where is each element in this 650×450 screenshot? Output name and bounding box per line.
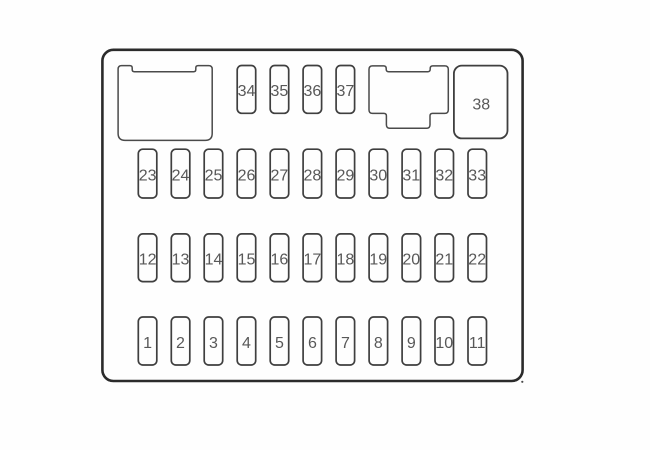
svg-text:33: 33	[468, 167, 486, 184]
svg-text:12: 12	[139, 252, 157, 269]
svg-text:23: 23	[139, 167, 157, 184]
svg-text:26: 26	[238, 167, 256, 184]
svg-text:17: 17	[304, 252, 322, 269]
svg-text:14: 14	[205, 252, 223, 269]
svg-text:36: 36	[304, 83, 322, 100]
svg-text:13: 13	[172, 252, 190, 269]
svg-text:5: 5	[275, 335, 284, 352]
svg-text:10: 10	[435, 335, 453, 352]
svg-text:19: 19	[369, 252, 387, 269]
svg-text:1: 1	[143, 335, 152, 352]
svg-text:22: 22	[468, 252, 486, 269]
svg-text:8: 8	[374, 335, 383, 352]
svg-text:16: 16	[271, 252, 289, 269]
svg-text:4: 4	[242, 335, 251, 352]
svg-text:28: 28	[304, 167, 322, 184]
svg-text:9: 9	[407, 335, 416, 352]
svg-text:6: 6	[308, 335, 317, 352]
svg-text:21: 21	[435, 252, 453, 269]
svg-text:15: 15	[238, 252, 256, 269]
svg-text:20: 20	[402, 252, 420, 269]
svg-text:30: 30	[369, 167, 387, 184]
svg-text:24: 24	[172, 167, 190, 184]
svg-text:25: 25	[205, 167, 223, 184]
svg-text:3: 3	[209, 335, 218, 352]
svg-text:7: 7	[341, 335, 350, 352]
svg-text:32: 32	[435, 167, 453, 184]
svg-text:35: 35	[271, 83, 289, 100]
svg-text:34: 34	[238, 83, 256, 100]
svg-text:31: 31	[402, 167, 420, 184]
svg-text:29: 29	[337, 167, 355, 184]
svg-text:2: 2	[176, 335, 185, 352]
svg-text:18: 18	[337, 252, 355, 269]
svg-text:27: 27	[271, 167, 289, 184]
svg-text:37: 37	[337, 83, 355, 100]
svg-text:11: 11	[469, 335, 486, 352]
svg-text:38: 38	[472, 97, 490, 114]
